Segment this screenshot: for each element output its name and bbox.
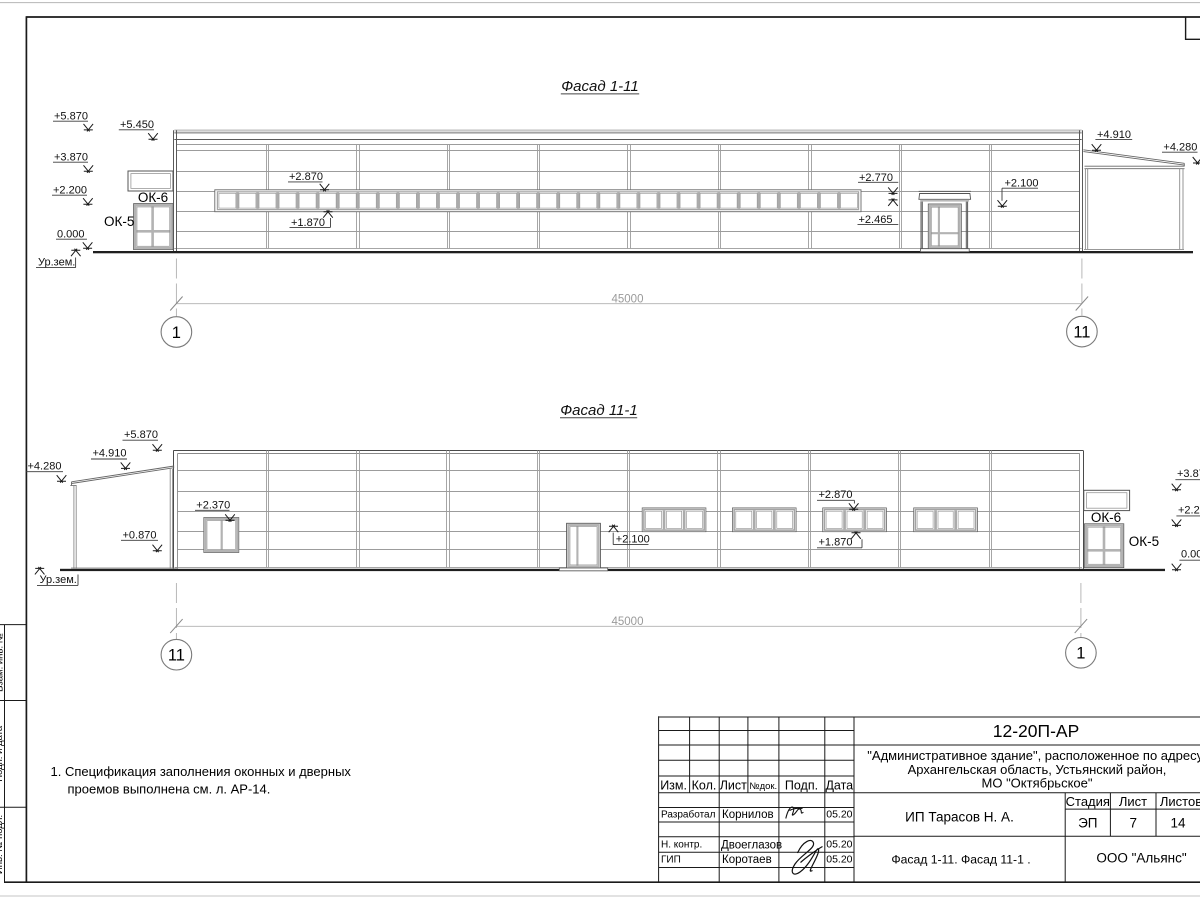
svg-text:Изм.: Изм. — [660, 779, 687, 793]
svg-text:7: 7 — [1129, 816, 1137, 831]
svg-text:11: 11 — [1073, 323, 1090, 341]
svg-text:1. Спецификация заполнения око: 1. Спецификация заполнения оконных и две… — [51, 764, 352, 779]
svg-text:+1.870: +1.870 — [819, 537, 853, 549]
svg-text:Лист: Лист — [1119, 794, 1147, 809]
svg-text:Инв. № подл.: Инв. № подл. — [0, 815, 5, 874]
svg-text:ОК-6: ОК-6 — [138, 190, 168, 205]
svg-text:+2.200: +2.200 — [53, 185, 87, 197]
svg-text:Дата: Дата — [825, 779, 853, 793]
svg-text:45000: 45000 — [612, 293, 644, 305]
svg-text:05.20: 05.20 — [826, 838, 852, 850]
svg-text:1: 1 — [1076, 645, 1085, 663]
svg-text:№док.: №док. — [749, 781, 777, 792]
svg-text:0.000: 0.000 — [1181, 548, 1200, 560]
svg-text:+3.870: +3.870 — [54, 152, 88, 164]
svg-text:ОК-5: ОК-5 — [104, 214, 134, 229]
svg-text:+4.910: +4.910 — [93, 448, 127, 460]
svg-text:ОК-6: ОК-6 — [1091, 510, 1121, 525]
svg-text:Ур.зем.: Ур.зем. — [40, 574, 77, 586]
svg-text:"Административное здание", рас: "Административное здание", расположенное… — [867, 748, 1200, 763]
svg-text:Подп.: Подп. — [785, 779, 818, 793]
svg-text:+5.450: +5.450 — [120, 119, 154, 131]
svg-text:Взам. инв. №: Взам. инв. № — [0, 633, 5, 692]
svg-text:МО "Октябрьское": МО "Октябрьское" — [982, 776, 1093, 791]
svg-text:Двоеглазов: Двоеглазов — [721, 839, 782, 851]
svg-text:Н. контр.: Н. контр. — [661, 840, 702, 851]
svg-text:+2.370: +2.370 — [196, 499, 230, 511]
svg-text:Кол.: Кол. — [692, 779, 717, 793]
svg-text:+2.870: +2.870 — [289, 171, 323, 183]
svg-text:Фасад 1-11. Фасад 11-1 .: Фасад 1-11. Фасад 11-1 . — [891, 852, 1030, 866]
svg-text:12-20П-АР: 12-20П-АР — [993, 721, 1080, 741]
svg-text:45000: 45000 — [612, 616, 644, 628]
svg-text:Листов: Листов — [1160, 794, 1200, 809]
svg-text:Разработал: Разработал — [661, 809, 716, 821]
svg-text:Лист: Лист — [720, 779, 747, 793]
svg-text:Стадия: Стадия — [1066, 794, 1110, 809]
svg-text:ГИП: ГИП — [661, 855, 681, 866]
svg-text:+4.280: +4.280 — [28, 460, 62, 472]
svg-text:05.20: 05.20 — [826, 854, 852, 866]
svg-text:+2.100: +2.100 — [616, 533, 650, 545]
svg-text:проемов выполнена см. л. АР-14: проемов выполнена см. л. АР-14. — [68, 782, 271, 797]
svg-text:ООО "Альянс": ООО "Альянс" — [1096, 850, 1186, 865]
svg-text:ЭП: ЭП — [1078, 816, 1097, 831]
svg-text:+2.100: +2.100 — [1005, 178, 1039, 190]
svg-text:+2.870: +2.870 — [819, 489, 853, 501]
svg-text:+3.870: +3.870 — [1177, 468, 1200, 480]
svg-text:ОК-5: ОК-5 — [1129, 534, 1159, 549]
svg-text:Корнилов: Корнилов — [722, 809, 774, 821]
svg-text:+5.870: +5.870 — [124, 429, 158, 441]
svg-text:ИП Тарасов Н. А.: ИП Тарасов Н. А. — [905, 809, 1014, 824]
svg-text:Ур.зем.: Ур.зем. — [38, 257, 75, 269]
svg-text:Коротаев: Коротаев — [722, 854, 772, 866]
svg-text:+0.870: +0.870 — [123, 529, 157, 541]
svg-text:1: 1 — [172, 324, 181, 342]
svg-text:14: 14 — [1170, 816, 1186, 831]
svg-text:0.000: 0.000 — [57, 229, 85, 241]
svg-text:+5.870: +5.870 — [54, 111, 88, 123]
svg-text:Архангельская область, Устьянс: Архангельская область, Устьянский район, — [908, 762, 1167, 777]
svg-text:11: 11 — [168, 647, 185, 665]
svg-text:+4.280: +4.280 — [1163, 141, 1197, 153]
svg-text:+2.465: +2.465 — [859, 214, 893, 226]
svg-text:Фасад 11-1: Фасад 11-1 — [560, 402, 637, 419]
svg-text:05.20: 05.20 — [826, 809, 852, 821]
svg-text:Фасад 1-11: Фасад 1-11 — [561, 78, 638, 95]
svg-text:+2.200: +2.200 — [1178, 504, 1200, 516]
svg-text:Подп. и дата: Подп. и дата — [0, 725, 5, 782]
